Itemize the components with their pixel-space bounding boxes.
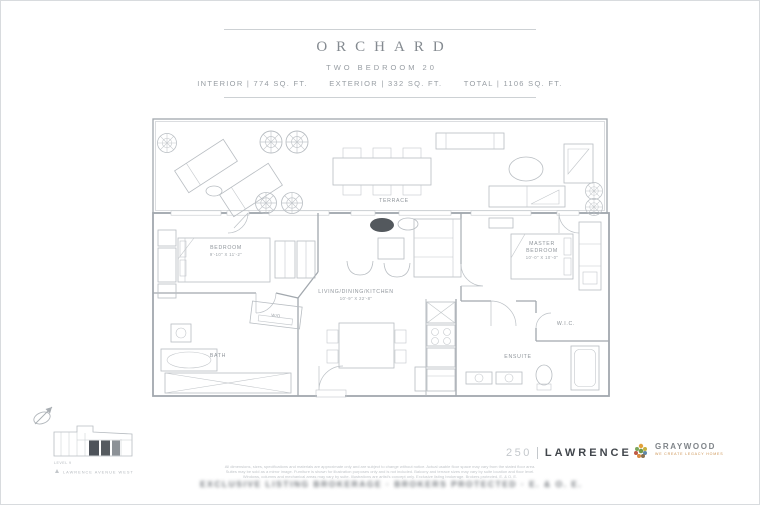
key-plan: LEVEL 9 LAWRENCE AVENUE WEST: [49, 418, 149, 478]
developer-name: GRAYWOOD: [655, 442, 723, 452]
key-plan-caption: LEVEL 9: [54, 461, 72, 465]
vanity: [171, 324, 191, 342]
total-area: TOTAL | 1106 SQ. FT.: [464, 79, 563, 88]
ensuite-fixtures: [466, 346, 599, 390]
side-table: [206, 186, 222, 196]
interior-area: INTERIOR | 774 SQ. FT.: [197, 79, 308, 88]
laundry-label: W/D: [271, 312, 281, 318]
project-name: LAWRENCE: [545, 447, 632, 459]
armchair: [347, 261, 373, 275]
dresser: [489, 218, 513, 228]
floor-plan: TERRACE BEDROOM 9'-10" X 11'-2" LIVING/D…: [151, 114, 611, 409]
bathtub: [161, 349, 217, 371]
developer-logo: GRAYWOOD WE CREATE LEGACY HOMES: [632, 442, 723, 460]
bedroom-dimensions: 9'-10" X 11'-2": [210, 252, 242, 257]
dining-table: [327, 323, 406, 368]
master-closet: [579, 222, 601, 290]
header-rule-top: [224, 29, 536, 30]
bath-label: BATH: [210, 353, 226, 359]
plan-title: ORCHARD: [1, 39, 759, 56]
outdoor-sofa: [489, 186, 565, 207]
wic-label: W.I.C.: [557, 321, 575, 327]
disclaimer: All dimensions, sizes, specifications an…: [176, 464, 584, 479]
outdoor-dining-table: [333, 148, 431, 195]
project-logo: 250 LAWRENCE: [506, 446, 632, 460]
master-dimensions: 10'-0" X 10'-0": [526, 255, 559, 260]
blurred-brokerage-line: EXCLUSIVE LISTING BROKERAGE · BROKERS PR…: [200, 479, 560, 489]
master-label-line2: BEDROOM: [526, 248, 558, 254]
ensuite-label: ENSUITE: [504, 354, 531, 360]
outdoor-armchair: [564, 144, 593, 183]
floorplan-sheet: ORCHARD TWO BEDROOM 20 INTERIOR | 774 SQ…: [0, 0, 760, 505]
unit-walls: [153, 211, 609, 398]
lounge-chair: [220, 163, 283, 216]
developer-tagline: WE CREATE LEGACY HOMES: [655, 452, 723, 457]
highlighted-suite: [89, 441, 99, 456]
master-label-line1: MASTER: [529, 241, 555, 247]
bedroom-label: BEDROOM: [210, 245, 242, 251]
plan-subtitle: TWO BEDROOM 20: [1, 63, 759, 72]
bath-fixtures: [161, 301, 302, 393]
coffee-table: [398, 218, 418, 230]
bedroom-furniture: [158, 230, 315, 298]
outdoor-table-round: [509, 157, 543, 181]
logo-divider: [537, 447, 538, 459]
street-label: LAWRENCE AVENUE WEST: [63, 470, 134, 475]
living-dimensions: 10'-9" X 22'-8": [340, 296, 373, 301]
header-rule-bottom: [224, 97, 536, 98]
living-label: LIVING/DINING/KITCHEN: [318, 289, 394, 295]
project-number: 250: [506, 447, 532, 459]
terrace-label: TERRACE: [379, 198, 409, 204]
toilet: [536, 365, 552, 390]
exterior-area: EXTERIOR | 332 SQ. FT.: [329, 79, 442, 88]
kitchen-appliances: [415, 302, 455, 391]
outdoor-bench: [436, 133, 504, 149]
lounge-chair: [175, 139, 238, 192]
side-table-square: [378, 238, 404, 259]
master-furniture: [489, 218, 601, 290]
living-furniture: [327, 218, 461, 391]
graywood-leaf-icon: [632, 442, 650, 460]
plan-areas: INTERIOR | 774 SQ. FT. EXTERIOR | 332 SQ…: [1, 79, 759, 88]
sofa: [414, 219, 461, 277]
armchair: [384, 263, 410, 277]
coffee-table-dark: [370, 218, 394, 232]
ensuite-tub: [571, 346, 599, 390]
floor-plan-drawing: TERRACE BEDROOM 9'-10" X 11'-2" LIVING/D…: [151, 114, 611, 404]
shower: [165, 373, 291, 393]
street-marker-icon: [55, 469, 59, 473]
header: ORCHARD TWO BEDROOM 20 INTERIOR | 774 SQ…: [1, 29, 759, 98]
